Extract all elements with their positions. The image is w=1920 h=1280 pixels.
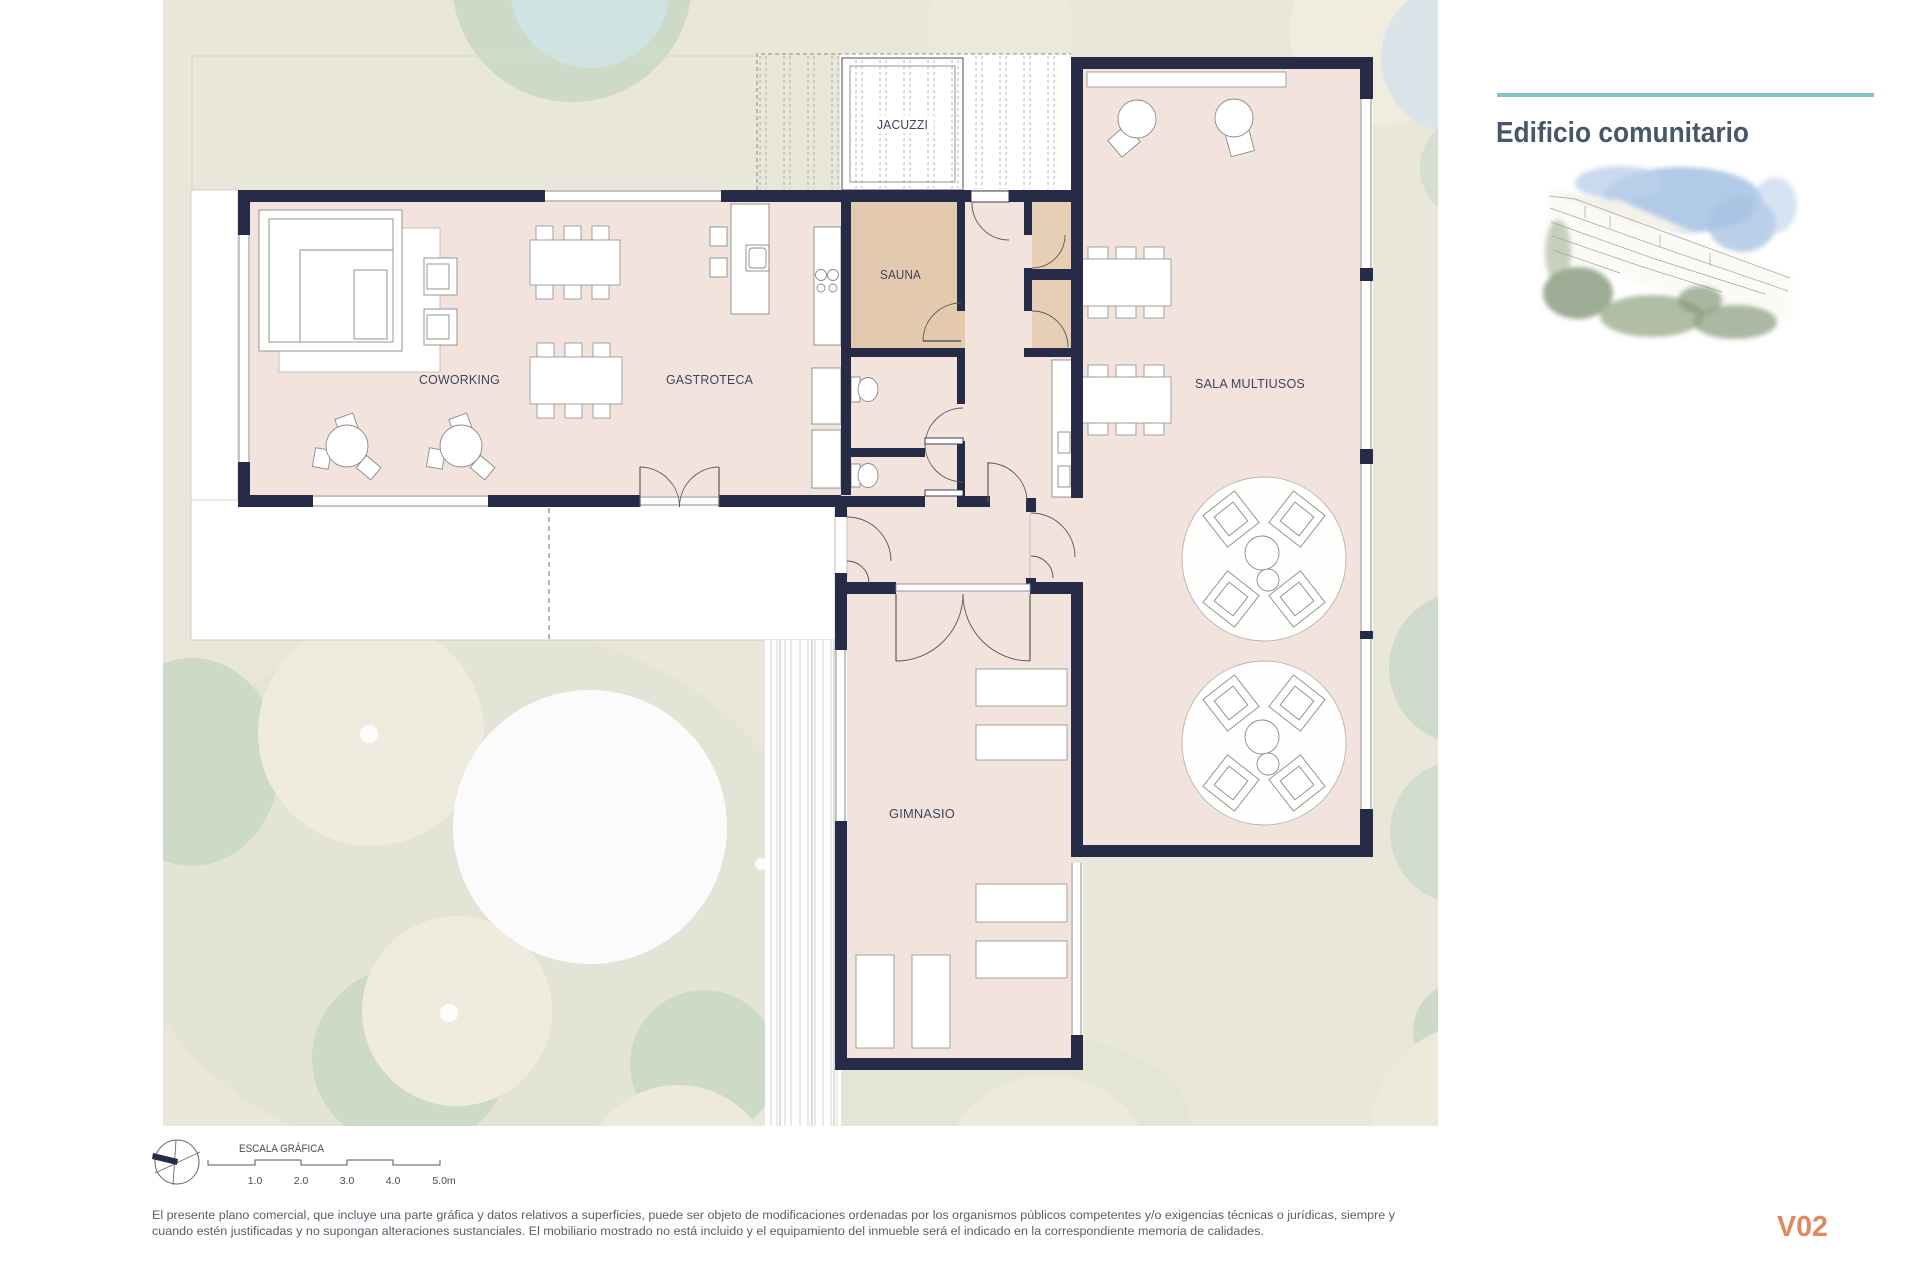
svg-text:COWORKING: COWORKING — [419, 373, 500, 387]
svg-text:El presente plano comercial, q: El presente plano comercial, que incluye… — [152, 1208, 1396, 1222]
svg-text:1.0: 1.0 — [248, 1175, 263, 1187]
svg-text:3.0: 3.0 — [340, 1175, 355, 1187]
svg-text:GIMNASIO: GIMNASIO — [889, 807, 955, 821]
svg-text:2.0: 2.0 — [294, 1175, 309, 1187]
svg-text:ESCALA GRÁFICA: ESCALA GRÁFICA — [239, 1142, 325, 1155]
svg-text:SAUNA: SAUNA — [880, 268, 921, 282]
svg-text:5.0m: 5.0m — [432, 1175, 456, 1187]
svg-text:4.0: 4.0 — [386, 1175, 401, 1187]
svg-text:V02: V02 — [1777, 1211, 1828, 1243]
svg-text:cuando estén justificadas y no: cuando estén justificadas y no supongan … — [152, 1224, 1264, 1238]
svg-text:Edificio comunitario: Edificio comunitario — [1496, 117, 1749, 149]
svg-text:JACUZZI: JACUZZI — [877, 118, 928, 132]
svg-text:GASTROTECA: GASTROTECA — [666, 373, 753, 387]
svg-text:SALA MULTIUSOS: SALA MULTIUSOS — [1195, 377, 1305, 391]
